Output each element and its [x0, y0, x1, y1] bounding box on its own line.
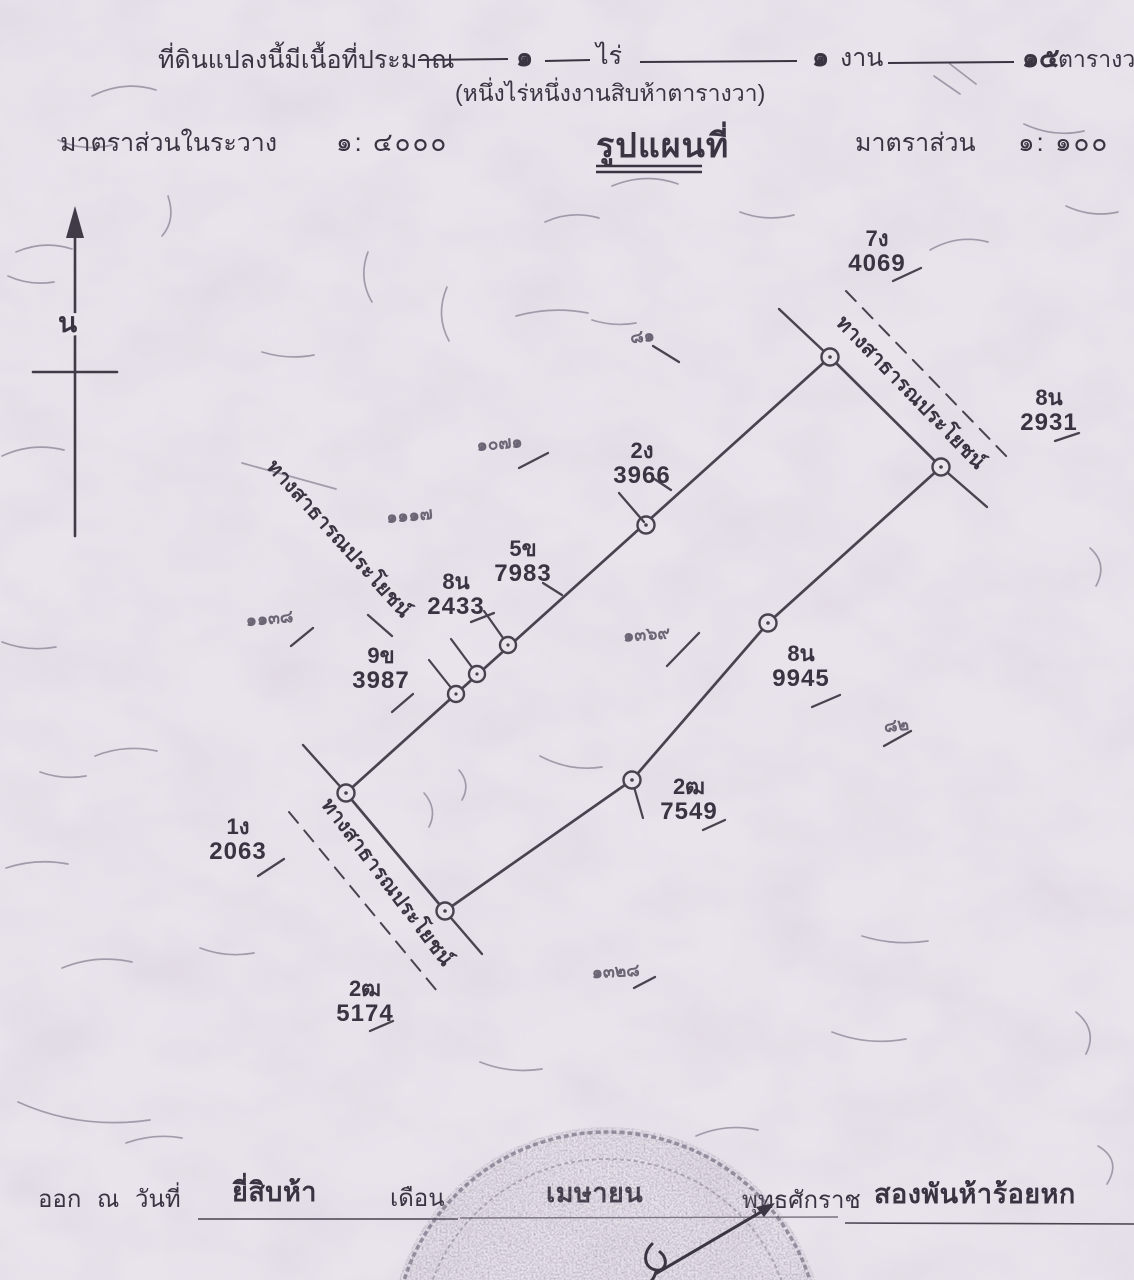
rai-value: ๑ [516, 42, 533, 72]
survey-distance-number: ๑๓๒๘ [591, 960, 640, 982]
ngan-value: ๑ [812, 42, 829, 72]
neighbor-plot-id: 2ฒ [673, 774, 705, 799]
year-underline [845, 1223, 1134, 1224]
sheet-scale-label: มาตราส่วนในระวาง [60, 128, 277, 157]
ngan-label: งาน [840, 44, 883, 72]
paper-texture [0, 0, 1134, 1280]
year-value: สองพันห้าร้อยหก [874, 1179, 1076, 1209]
map-title: รูปแผนที่ [596, 121, 729, 167]
neighbor-plot-number: 7549 [660, 798, 717, 825]
wa-value: ๑๕ [1022, 43, 1060, 73]
figure-scale-value: ๑: ๑๐๐ [1018, 127, 1109, 157]
survey-distance-number: ๑๓๖๙ [622, 622, 670, 645]
neighbor-plot-number: 4069 [848, 250, 905, 277]
neighbor-plot-id: 2ฒ [349, 976, 381, 1001]
survey-distance-number: ๘๑ [629, 325, 656, 347]
survey-distance-number: ๘๒ [883, 714, 910, 737]
rai-label: ไร่ [594, 41, 622, 70]
day-value: ยี่สิบห้า [232, 1172, 317, 1207]
neighbor-plot-id: 2ง [631, 438, 654, 463]
sheet-scale-value: ๑: ๔๐๐๐ [336, 127, 448, 157]
neighbor-plot-number: 9945 [772, 665, 829, 692]
neighbor-plot-number: 3966 [613, 462, 670, 489]
neighbor-plot-id: 8น [1035, 385, 1062, 410]
neighbor-plot-id: 8น [787, 641, 814, 666]
neighbor-plot-id: 5ข [509, 536, 536, 561]
survey-distance-number: ๑๑๓๘ [245, 606, 294, 630]
figure-scale-label: มาตราส่วน [855, 129, 976, 157]
neighbor-plot-number: 5174 [336, 1000, 393, 1027]
month-label: เดือน [390, 1185, 445, 1212]
neighbor-plot-number: 7983 [494, 560, 551, 587]
survey-distance-number: ๑๐๗๑ [476, 431, 524, 455]
neighbor-plot-id: 1ง [227, 814, 250, 839]
wa-label: ตารางวา [1058, 46, 1134, 72]
land-deed-document: ที่ดินแปลงนี้มีเนื้อที่ประมาณ ๑ ไร่ ๑ งา… [0, 0, 1134, 1280]
neighbor-plot-number: 2433 [427, 593, 484, 620]
neighbor-plot-number: 2931 [1020, 409, 1077, 436]
survey-distance-number: ๑๑๑๗ [385, 503, 433, 527]
deed-map-canvas: ที่ดินแปลงนี้มีเนื้อที่ประมาณ ๑ ไร่ ๑ งา… [0, 0, 1134, 1280]
issued-prefix: ออก ณ วันที่ [38, 1182, 181, 1213]
neighbor-plot-id: 9ข [367, 643, 394, 668]
neighbor-plot-number: 3987 [352, 667, 409, 694]
area-in-words: (หนึ่งไร่หนึ่งงานสิบห้าตารางวา) [455, 77, 765, 106]
neighbor-plot-id: 8น [442, 569, 469, 594]
area-statement: ที่ดินแปลงนี้มีเนื้อที่ประมาณ [158, 41, 454, 74]
neighbor-plot-number: 2063 [209, 838, 266, 865]
north-label: น [58, 307, 77, 338]
neighbor-plot-id: 7ง [866, 226, 889, 251]
